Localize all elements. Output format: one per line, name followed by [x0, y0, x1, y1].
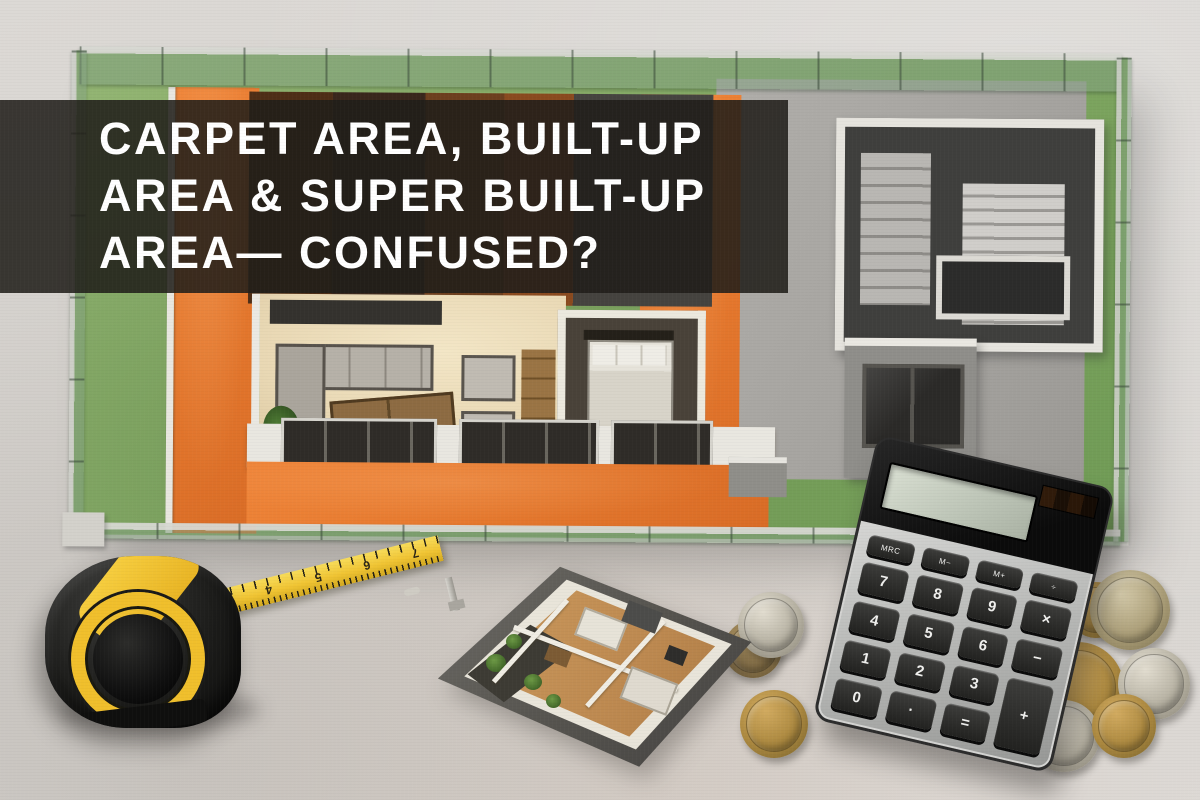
stairwell	[835, 118, 1105, 353]
coin	[1092, 694, 1156, 758]
bed-headboard	[584, 330, 674, 341]
stair-flight	[860, 153, 931, 305]
title-banner: CARPET AREA, BUILT-UP AREA & SUPER BUILT…	[0, 100, 788, 293]
key-9: 9	[966, 586, 1018, 626]
key-5: 5	[902, 613, 954, 653]
tv-cabinet	[270, 300, 442, 325]
window	[459, 419, 599, 468]
armchair	[461, 355, 515, 401]
key-minus: −	[1011, 638, 1063, 678]
banner-line-1: CARPET AREA, BUILT-UP	[99, 110, 788, 167]
hero-image: CARPET AREA, BUILT-UP AREA & SUPER BUILT…	[0, 0, 1200, 800]
fence-corner-post	[62, 512, 104, 546]
banner-line-3: AREA— CONFUSED?	[99, 224, 788, 281]
banner-line-2: AREA & SUPER BUILT-UP	[99, 167, 788, 224]
key-decimal: ·	[885, 690, 937, 730]
key-m-minus: M−	[920, 547, 970, 577]
mini-plant	[546, 694, 561, 708]
glass-fence-right	[1113, 58, 1131, 542]
window	[862, 364, 965, 449]
tape-measure-body	[45, 556, 241, 728]
tape-number: 5	[313, 570, 323, 585]
key-4: 4	[848, 600, 900, 640]
key-6: 6	[957, 625, 1009, 665]
calculator-display	[879, 462, 1038, 543]
tape-number: 7	[411, 546, 421, 561]
key-0: 0	[830, 678, 882, 718]
key-plus: +	[993, 677, 1054, 756]
calculator-keypad: MRC M− M+ ÷ 7 8 9 × 4 5 6 − 1 2 3 + 0 · …	[830, 534, 1079, 756]
terrace-front	[246, 462, 768, 530]
tape-shell	[45, 556, 241, 728]
key-equals: =	[939, 703, 991, 743]
window	[611, 420, 713, 469]
planter-box	[936, 255, 1070, 320]
tape-number: 6	[362, 558, 372, 573]
key-3: 3	[948, 664, 1000, 704]
key-8: 8	[911, 574, 963, 614]
key-m-plus: M+	[974, 559, 1024, 589]
key-multiply: ×	[1020, 599, 1072, 639]
key-divide: ÷	[1029, 572, 1079, 602]
tape-rivet	[403, 586, 420, 597]
solar-panel	[1038, 485, 1099, 519]
glass-fence-top	[79, 46, 1121, 91]
parapet-block	[729, 457, 787, 497]
key-2: 2	[894, 651, 946, 691]
key-mrc: MRC	[866, 534, 916, 564]
mini-plant	[506, 634, 522, 649]
tape-hub	[93, 614, 183, 704]
mini-plant	[524, 674, 542, 690]
tape-number: 4	[264, 582, 274, 597]
window	[281, 418, 437, 467]
mini-house-model	[428, 556, 758, 771]
coin	[1090, 570, 1170, 650]
key-1: 1	[839, 639, 891, 679]
key-7: 7	[857, 561, 909, 601]
